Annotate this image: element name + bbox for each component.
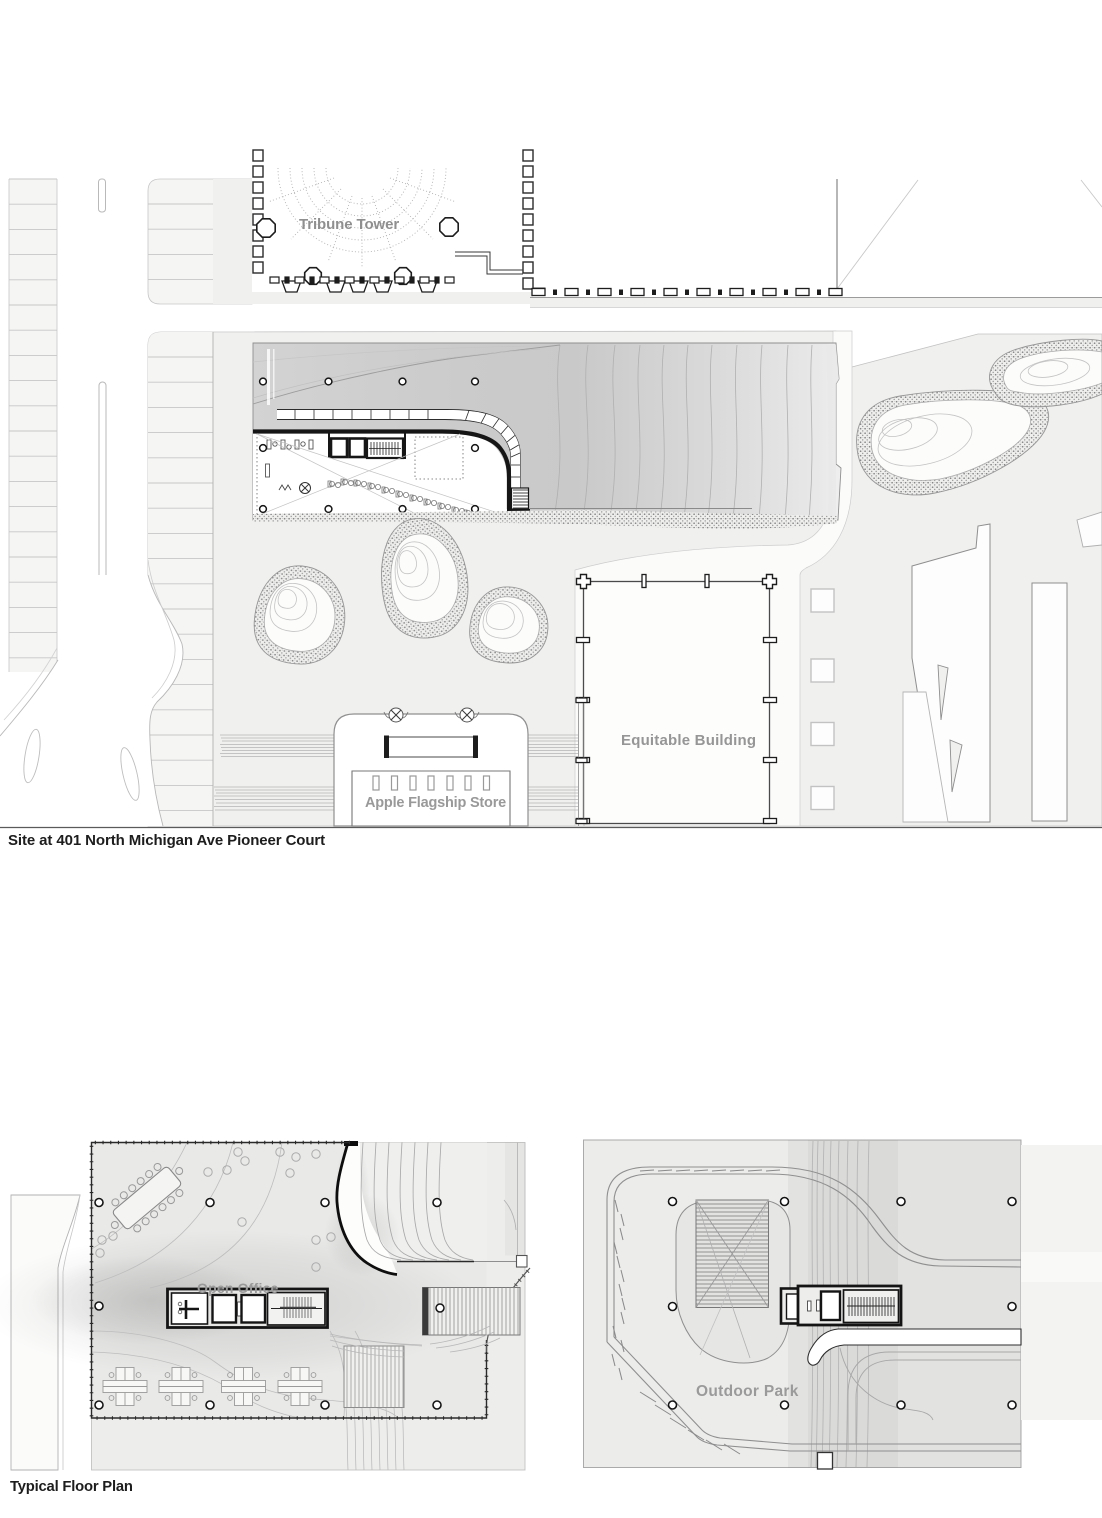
svg-text:Site at 401 North Michigan Ave: Site at 401 North Michigan Ave Pioneer C… — [8, 832, 325, 849]
svg-text:Tribune Tower: Tribune Tower — [299, 216, 399, 233]
svg-text:Outdoor Park: Outdoor Park — [696, 1383, 799, 1400]
svg-text:Typical Floor Plan: Typical Floor Plan — [10, 1479, 133, 1495]
svg-text:Apple Flagship Store: Apple Flagship Store — [365, 795, 506, 811]
svg-text:Open Office: Open Office — [197, 1280, 279, 1296]
svg-text:Equitable Building: Equitable Building — [621, 732, 756, 749]
